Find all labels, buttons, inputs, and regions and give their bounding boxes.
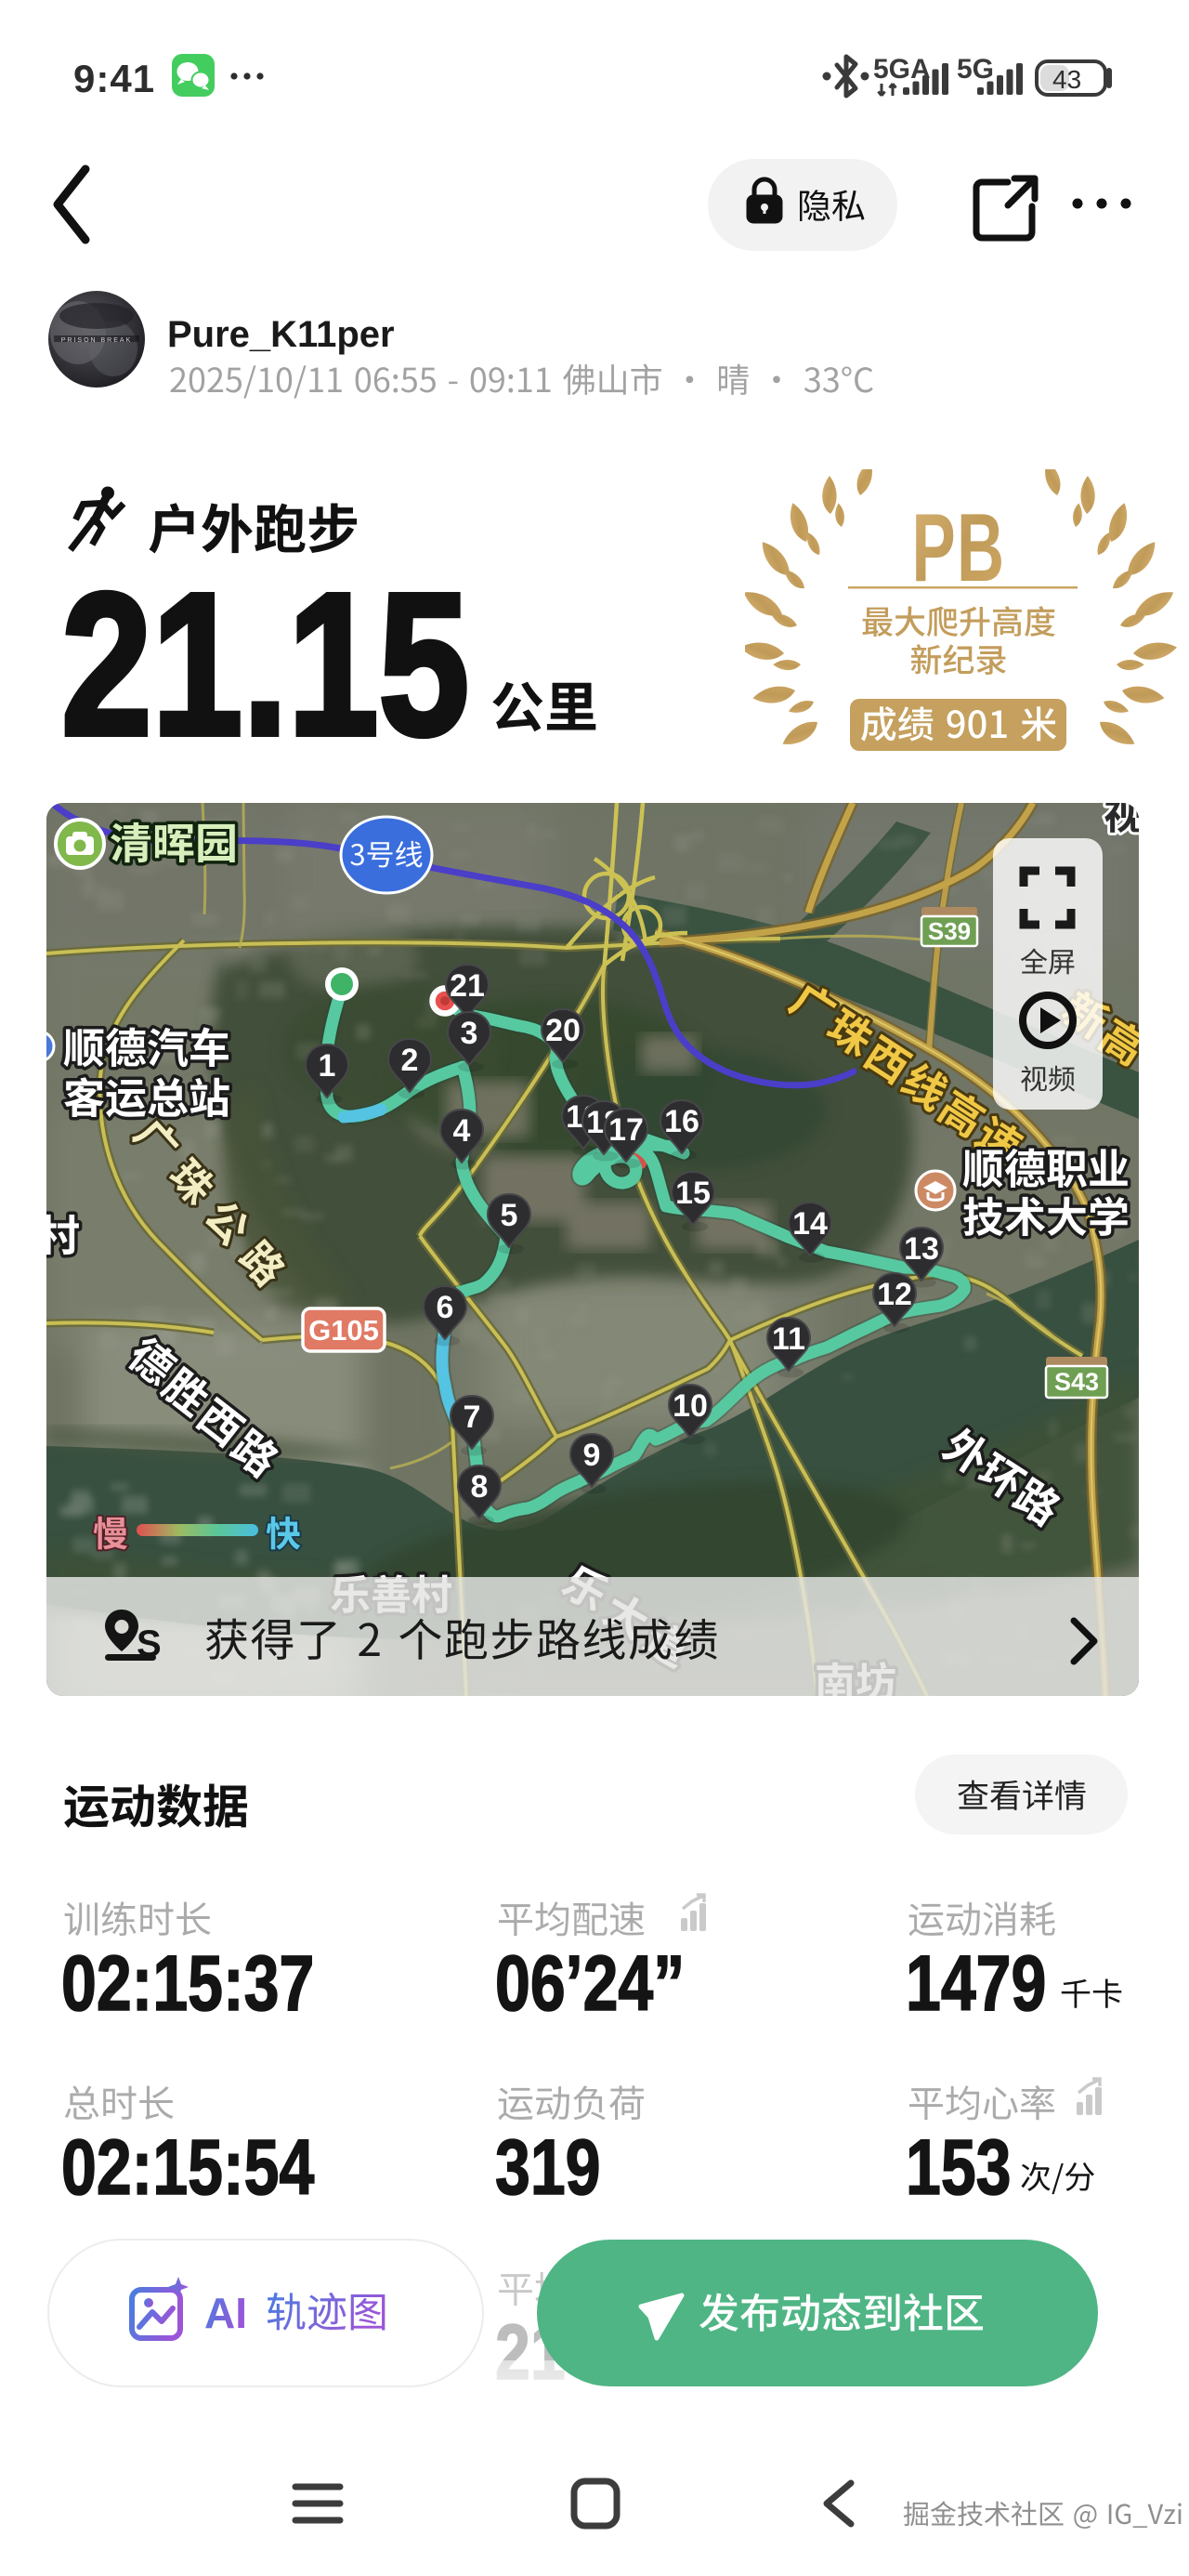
svg-text:5: 5 [501, 1198, 518, 1233]
svg-text:02:15:54: 02:15:54 [61, 2124, 315, 2211]
svg-text:9:41: 9:41 [73, 57, 155, 100]
svg-text:AI: AI [204, 2289, 247, 2337]
svg-text:1479: 1479 [906, 1940, 1046, 2027]
svg-text:14: 14 [792, 1206, 828, 1242]
svg-text:G105: G105 [308, 1314, 379, 1347]
svg-text:15: 15 [675, 1176, 711, 1211]
svg-text:3: 3 [461, 1016, 478, 1051]
svg-text:6: 6 [437, 1290, 454, 1325]
svg-text:2: 2 [401, 1043, 419, 1078]
svg-text:43: 43 [1052, 65, 1081, 94]
svg-text:PRISON BREAK: PRISON BREAK [61, 337, 133, 344]
svg-text:PB: PB [912, 493, 1006, 601]
svg-text:12: 12 [877, 1277, 912, 1312]
svg-text:02:15:37: 02:15:37 [61, 1940, 314, 2027]
svg-text:21: 21 [450, 968, 485, 1004]
svg-text:20: 20 [545, 1013, 581, 1048]
svg-text:13: 13 [904, 1231, 939, 1267]
svg-text:319: 319 [495, 2124, 601, 2211]
svg-text:5GA: 5GA [873, 54, 931, 85]
svg-text:10: 10 [673, 1388, 708, 1424]
svg-text:11: 11 [772, 1321, 805, 1357]
svg-text:1: 1 [319, 1048, 336, 1084]
svg-text:9: 9 [583, 1438, 601, 1473]
svg-text:S43: S43 [1054, 1368, 1099, 1396]
svg-text:153: 153 [906, 2124, 1012, 2211]
svg-text:7: 7 [464, 1400, 481, 1435]
svg-text:Pure_K11per: Pure_K11per [167, 314, 395, 355]
svg-text:8: 8 [471, 1469, 489, 1505]
svg-text:17: 17 [608, 1112, 644, 1148]
svg-text:S39: S39 [928, 917, 971, 945]
svg-text:16: 16 [664, 1104, 699, 1139]
svg-text:5G: 5G [957, 54, 994, 85]
svg-text:06’24”: 06’24” [495, 1940, 685, 2027]
svg-text:4: 4 [453, 1113, 471, 1149]
svg-text:21.15: 21.15 [61, 558, 469, 762]
